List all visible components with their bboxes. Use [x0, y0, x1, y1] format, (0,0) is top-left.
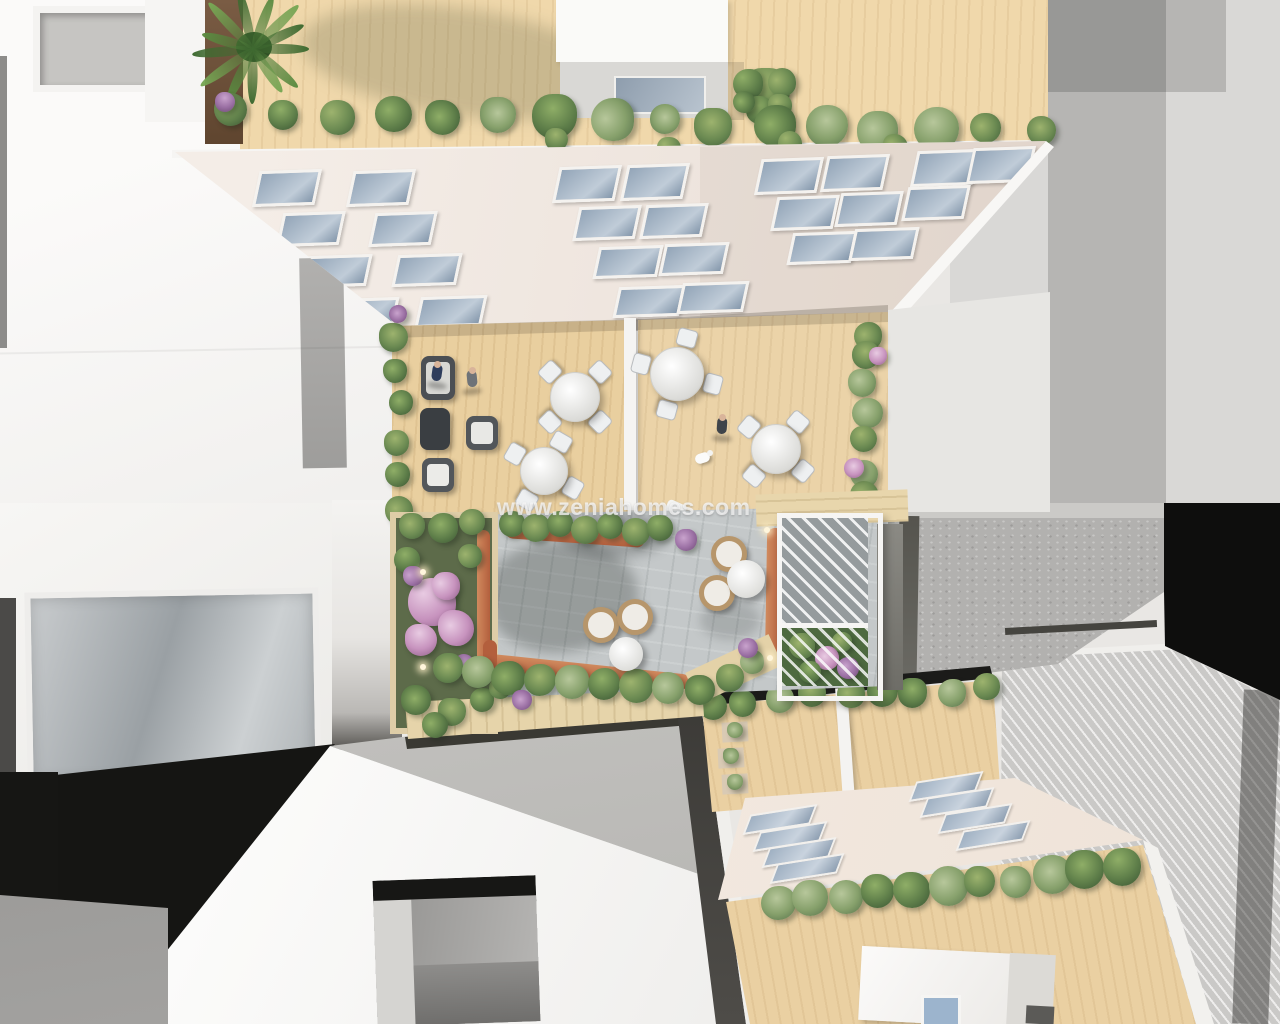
planter-box — [721, 721, 748, 742]
aerial-architectural-render: www.zeniahomes.com — [0, 0, 1280, 1024]
roof-corner-parapet — [145, 0, 207, 122]
chair — [586, 408, 613, 435]
penthouse-skylight-glass — [921, 995, 961, 1024]
chair — [548, 429, 574, 455]
pergola-slatted-roof — [782, 518, 868, 623]
building-shadow-on-roof — [1048, 0, 1166, 508]
bush — [854, 322, 882, 350]
bush — [929, 866, 969, 906]
concrete-roof-parapet — [886, 503, 1164, 518]
chair — [736, 413, 763, 440]
bush — [1065, 850, 1104, 889]
person-shadow — [712, 434, 732, 442]
bush — [850, 426, 876, 452]
facade-window — [676, 281, 749, 314]
chair — [537, 359, 564, 386]
roof-skylight — [919, 787, 994, 818]
terrace-divider-wall — [835, 688, 855, 801]
coffee-table — [727, 560, 765, 598]
roof-penthouse — [556, 0, 728, 62]
roof-skylight — [752, 821, 827, 852]
roof-skylight-shade — [728, 62, 744, 120]
facade-window — [658, 242, 729, 276]
dog — [694, 451, 711, 465]
person — [716, 417, 727, 435]
bush — [852, 398, 882, 428]
roof-glass-shadow-edge — [0, 598, 16, 788]
dining-table — [550, 372, 600, 422]
bush — [844, 458, 864, 478]
pergola — [777, 513, 883, 701]
dining-table — [751, 424, 801, 474]
roof-glass-panel — [24, 587, 321, 786]
roof-skylight-glass — [614, 76, 706, 114]
dog-head — [707, 450, 713, 456]
hole-floor — [413, 961, 540, 1024]
roof-ridge-line — [1002, 644, 1172, 659]
gray-wall-strip — [299, 258, 347, 469]
concrete-window-slit — [1005, 620, 1157, 635]
planter-box — [721, 773, 748, 794]
chair — [789, 458, 816, 485]
bush — [850, 460, 878, 488]
facade-window — [848, 227, 919, 261]
bush — [1103, 848, 1141, 886]
chair — [586, 359, 613, 386]
facade-window — [552, 165, 622, 203]
penthouse-stair-notch — [1026, 1005, 1055, 1024]
roof-edge-dark — [0, 56, 7, 348]
bush — [938, 679, 966, 707]
tree-shadow-blob — [700, 600, 760, 640]
dining-table — [520, 447, 568, 495]
facade-window — [754, 157, 824, 195]
chair — [740, 462, 767, 489]
dining-table — [650, 347, 704, 401]
pergola-garden-slats — [782, 628, 868, 686]
roof-lightwell — [33, 6, 159, 92]
bush — [792, 880, 828, 916]
bush — [729, 690, 756, 717]
facade-window — [834, 191, 904, 227]
roof-skylight — [742, 804, 817, 835]
bush — [893, 872, 929, 908]
palm-planter — [205, 0, 243, 144]
bush — [964, 866, 995, 897]
bush — [761, 886, 795, 920]
bush — [848, 369, 876, 397]
inner-courtyard-hole — [373, 875, 541, 1024]
terracotta-curb — [483, 640, 497, 670]
roof-skylight — [908, 771, 983, 802]
bush — [852, 341, 880, 369]
facade-window — [786, 231, 857, 265]
roof-skylight — [955, 820, 1030, 851]
roof-skylight — [761, 837, 836, 868]
facade-window — [620, 163, 690, 201]
watermark-text: www.zeniahomes.com — [497, 494, 751, 521]
bush — [829, 880, 863, 914]
wicker-chair — [711, 536, 747, 572]
chair — [675, 327, 699, 350]
person-head — [719, 414, 726, 421]
facade-window — [639, 203, 709, 239]
roof-skylight — [937, 803, 1012, 834]
facade-window — [592, 245, 663, 279]
facade-window — [820, 154, 890, 192]
dark-ground-left — [0, 772, 58, 1024]
chair — [785, 409, 812, 436]
bush — [869, 347, 887, 365]
bush — [973, 673, 1000, 700]
chair — [701, 372, 724, 396]
roof-dark-stripe — [1232, 689, 1280, 1024]
planter-box — [717, 747, 744, 768]
facade-window — [770, 195, 840, 231]
terrace-divider-wall — [624, 318, 636, 510]
hole-right-wall — [411, 895, 538, 969]
tiled-strip — [685, 634, 783, 704]
bush — [861, 874, 895, 908]
roof-skylight — [769, 853, 844, 884]
facade-window — [572, 205, 642, 241]
chair — [655, 398, 679, 421]
bush — [1033, 855, 1072, 894]
bush — [1000, 866, 1031, 897]
bush — [675, 529, 697, 551]
facade-window — [612, 285, 685, 318]
chair — [537, 408, 564, 435]
